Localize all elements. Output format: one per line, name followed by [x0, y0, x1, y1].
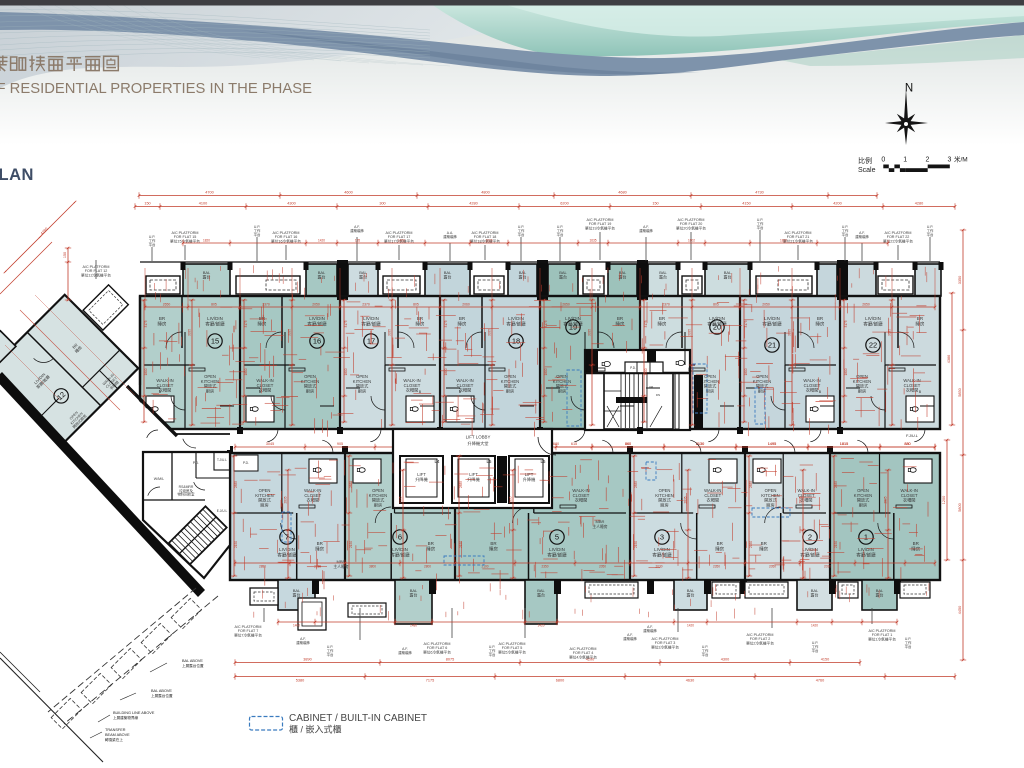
svg-text:BR: BR [490, 541, 497, 546]
svg-text:1800: 1800 [744, 368, 748, 375]
svg-text:客廳/飯廳: 客廳/飯廳 [863, 320, 883, 327]
svg-text:BR: BR [913, 541, 920, 546]
svg-text:860: 860 [625, 442, 631, 446]
svg-text:建築裝飾: 建築裝飾 [350, 228, 364, 233]
svg-text:2130: 2130 [696, 442, 704, 446]
svg-text:1420: 1420 [318, 239, 325, 243]
svg-text:6: 6 [398, 533, 402, 542]
svg-text:2350: 2350 [713, 565, 720, 569]
svg-text:1800: 1800 [144, 368, 148, 375]
svg-text:廚房: 廚房 [766, 501, 774, 508]
svg-text:LIV/DIN: LIV/DIN [764, 316, 780, 321]
svg-text:露台: 露台 [619, 274, 627, 280]
svg-text:4800: 4800 [481, 191, 489, 195]
svg-text:805: 805 [713, 302, 719, 306]
svg-text:LIV/DIN: LIV/DIN [858, 547, 874, 552]
svg-text:P.D.: P.D. [243, 461, 249, 465]
svg-text:升降機: 升降機 [523, 476, 536, 483]
svg-text:4730: 4730 [755, 191, 763, 195]
svg-text:平台: 平台 [842, 232, 849, 237]
svg-text:物料回收室: 物料回收室 [178, 492, 196, 497]
svg-text:單位6冷氣機平台: 單位6冷氣機平台 [423, 649, 451, 654]
svg-text:3335: 3335 [187, 329, 191, 336]
svg-text:1200: 1200 [942, 496, 946, 504]
svg-text:LIV/DIN: LIV/DIN [207, 316, 223, 321]
svg-text:平台: 平台 [557, 232, 564, 237]
svg-text:BAL ABOVE: BAL ABOVE [151, 689, 172, 693]
svg-text:21: 21 [768, 341, 776, 350]
svg-text:3175: 3175 [244, 320, 248, 327]
svg-text:睡房: 睡房 [416, 320, 425, 327]
svg-text:廚房: 廚房 [206, 387, 214, 394]
svg-text:2050: 2050 [762, 302, 770, 306]
svg-text:2835: 2835 [234, 481, 238, 488]
svg-text:睡房: 睡房 [916, 320, 925, 327]
svg-text:3175: 3175 [444, 320, 448, 327]
svg-text:1800: 1800 [344, 368, 348, 375]
svg-text:3175: 3175 [844, 320, 848, 327]
svg-text:4200: 4200 [833, 202, 841, 206]
svg-text:廚房: 廚房 [306, 387, 314, 394]
svg-text:LIV/DIN: LIV/DIN [549, 547, 565, 552]
svg-text:3: 3 [948, 157, 952, 164]
svg-text:2: 2 [926, 157, 930, 164]
svg-text:單位2冷氣機平台: 單位2冷氣機平台 [746, 640, 774, 645]
svg-text:2150: 2150 [834, 541, 838, 548]
svg-text:米/M: 米/M [954, 155, 968, 164]
svg-text:L4: L4 [435, 459, 440, 464]
svg-text:1602: 1602 [688, 239, 695, 243]
svg-text:2060: 2060 [462, 302, 470, 306]
svg-text:LIV/DIN: LIV/DIN [309, 316, 325, 321]
svg-text:客廳/飯廳: 客廳/飯廳 [361, 320, 381, 327]
svg-text:平台: 平台 [149, 242, 156, 247]
svg-text:露台: 露台 [293, 592, 301, 598]
svg-text:LIV/DIN: LIV/DIN [865, 316, 881, 321]
svg-text:衣帽間: 衣帽間 [903, 497, 916, 504]
svg-text:N: N [905, 83, 913, 95]
svg-text:1800: 1800 [544, 368, 548, 375]
svg-text:露台: 露台 [724, 274, 732, 280]
svg-text:升降機: 升降機 [415, 476, 428, 483]
svg-text:2030: 2030 [824, 565, 831, 569]
svg-text:PLAN: PLAN [0, 166, 34, 184]
svg-text:平台: 平台 [757, 225, 764, 230]
svg-text:1800: 1800 [844, 368, 848, 375]
svg-text:BR: BR [417, 316, 424, 321]
svg-text:露台: 露台 [410, 592, 418, 598]
svg-text:7: 7 [285, 533, 289, 542]
svg-text:2150: 2150 [459, 541, 463, 548]
svg-text:2: 2 [808, 533, 812, 542]
svg-text:睡房: 睡房 [458, 320, 467, 327]
svg-text:LIFT LOBBY: LIFT LOBBY [466, 435, 491, 440]
svg-text:2150: 2150 [234, 541, 238, 548]
svg-text:3045: 3045 [266, 442, 274, 446]
svg-text:2880: 2880 [259, 565, 266, 569]
svg-text:2835: 2835 [349, 481, 353, 488]
svg-text:建築裝飾: 建築裝飾 [623, 636, 637, 641]
svg-text:衣帽間: 衣帽間 [707, 497, 720, 504]
svg-text:2835: 2835 [634, 481, 638, 488]
svg-text:BR: BR [428, 541, 435, 546]
svg-text:BAL ABOVE: BAL ABOVE [182, 659, 203, 663]
svg-text:單位20冷氣機平台: 單位20冷氣機平台 [676, 225, 706, 230]
svg-text:廚房: 廚房 [260, 501, 268, 508]
svg-text:5850: 5850 [958, 388, 962, 396]
svg-text:5380: 5380 [296, 679, 304, 683]
svg-text:1: 1 [864, 533, 868, 542]
svg-text:建築裝飾: 建築裝飾 [443, 234, 457, 239]
svg-text:2370: 2370 [362, 302, 370, 306]
svg-text:BEAM ABOVE: BEAM ABOVE [105, 733, 130, 737]
svg-text:805: 805 [211, 302, 217, 306]
svg-text:客廳/飯廳: 客廳/飯廳 [506, 320, 526, 327]
svg-text:建築裝飾: 建築裝飾 [855, 234, 869, 239]
svg-text:3335: 3335 [687, 329, 691, 336]
svg-text:8075: 8075 [446, 658, 454, 662]
svg-text:比例: 比例 [858, 156, 872, 165]
svg-text:BR: BR [761, 541, 768, 546]
svg-text:轉換梁在上: 轉換梁在上 [105, 737, 123, 742]
svg-text:上層建築物界線: 上層建築物界線 [113, 715, 139, 720]
svg-text:OF RESIDENTIAL PROPERTIES IN T: OF RESIDENTIAL PROPERTIES IN THE PHASE [0, 81, 312, 97]
svg-text:6800: 6800 [556, 679, 564, 683]
svg-text:BR: BR [159, 316, 166, 321]
svg-text:1820: 1820 [780, 239, 787, 243]
svg-text:3350: 3350 [958, 276, 962, 284]
svg-text:0: 0 [881, 157, 885, 164]
svg-text:4450: 4450 [958, 606, 962, 614]
svg-text:150: 150 [652, 202, 658, 206]
svg-text:4630: 4630 [686, 679, 694, 683]
svg-text:建築裝飾: 建築裝飾 [643, 628, 657, 633]
svg-text:2650: 2650 [862, 302, 870, 306]
svg-text:2050: 2050 [599, 565, 606, 569]
svg-text:平台: 平台 [327, 652, 334, 657]
svg-text:2800: 2800 [424, 565, 431, 569]
svg-text:1420: 1420 [537, 623, 544, 627]
svg-text:5: 5 [555, 533, 559, 542]
svg-text:單位7冷氣機平台: 單位7冷氣機平台 [234, 632, 262, 637]
svg-text:300: 300 [379, 202, 385, 206]
svg-text:BR: BR [459, 316, 466, 321]
svg-text:單位4冷氣機平台: 單位4冷氣機平台 [569, 654, 597, 659]
svg-text:睡房: 睡房 [158, 320, 167, 327]
svg-text:主人睡房: 主人睡房 [333, 564, 348, 569]
svg-text:4280: 4280 [915, 202, 923, 206]
svg-text:4700: 4700 [205, 191, 213, 195]
svg-text:睡房: 睡房 [715, 545, 724, 552]
svg-text:905: 905 [337, 442, 343, 446]
svg-text:1: 1 [903, 157, 907, 164]
svg-text:客廳/飯廳: 客廳/飯廳 [277, 551, 297, 558]
svg-text:露台: 露台 [559, 274, 567, 280]
svg-text:2835: 2835 [398, 496, 402, 503]
svg-text:露台: 露台 [687, 592, 695, 598]
svg-text:3175: 3175 [544, 320, 548, 327]
svg-text:主人睡房: 主人睡房 [592, 524, 607, 529]
svg-text:1420: 1420 [687, 623, 694, 627]
svg-text:BR: BR [259, 316, 266, 321]
svg-text:LIV/DIN: LIV/DIN [392, 547, 408, 552]
svg-text:2150: 2150 [634, 541, 638, 548]
svg-text:15: 15 [211, 337, 219, 346]
svg-text:805: 805 [413, 302, 419, 306]
svg-text:4100: 4100 [199, 202, 207, 206]
svg-text:135: 135 [355, 239, 361, 243]
svg-text:2835: 2835 [283, 496, 287, 503]
svg-text:露台: 露台 [519, 274, 527, 280]
svg-text:2835: 2835 [508, 496, 512, 503]
svg-text:BR: BR [917, 316, 924, 321]
svg-text:3: 3 [660, 533, 664, 542]
svg-text:4300: 4300 [287, 202, 295, 206]
svg-text:單位19冷氣機平台: 單位19冷氣機平台 [585, 225, 615, 230]
svg-text:7175: 7175 [426, 679, 434, 683]
svg-text:4680: 4680 [618, 191, 626, 195]
svg-text:BR: BR [617, 316, 624, 321]
svg-text:單位1冷氣機平台: 單位1冷氣機平台 [868, 636, 896, 641]
svg-text:22: 22 [869, 341, 877, 350]
svg-text:DN: DN [656, 393, 660, 397]
svg-text:1620: 1620 [485, 239, 492, 243]
svg-text:5800: 5800 [958, 503, 962, 511]
svg-text:P.D.: P.D. [630, 366, 636, 370]
svg-text:LIV/DIN: LIV/DIN [279, 547, 295, 552]
svg-text:4760: 4760 [816, 679, 824, 683]
svg-text:1635: 1635 [589, 239, 596, 243]
svg-text:2650: 2650 [163, 302, 171, 306]
svg-text:平台: 平台 [927, 232, 934, 237]
svg-text:BR: BR [717, 541, 724, 546]
svg-text:3335: 3335 [787, 329, 791, 336]
svg-text:1400: 1400 [293, 623, 300, 627]
svg-text:2650: 2650 [562, 302, 570, 306]
svg-text:睡房: 睡房 [658, 320, 667, 327]
svg-text:1480: 1480 [410, 623, 417, 627]
svg-text:露台: 露台 [876, 592, 884, 598]
svg-text:平台: 平台 [518, 232, 525, 237]
svg-text:客廳/飯廳: 客廳/飯廳 [205, 320, 225, 327]
svg-text:2150: 2150 [349, 541, 353, 548]
svg-text:L5: L5 [487, 459, 492, 464]
svg-text:4280: 4280 [469, 202, 477, 206]
svg-text:20: 20 [713, 323, 721, 332]
svg-text:150: 150 [63, 252, 67, 258]
svg-text:3335: 3335 [587, 329, 591, 336]
svg-text:1495: 1495 [768, 442, 776, 446]
svg-text:客廳/飯廳: 客廳/飯廳 [762, 320, 782, 327]
svg-text:客廳/飯廳: 客廳/飯廳 [390, 551, 410, 558]
svg-text:廚房: 廚房 [506, 387, 514, 394]
svg-text:BR: BR [317, 541, 324, 546]
svg-text:客廳/飯廳: 客廳/飯廳 [307, 320, 327, 327]
svg-text:T.J/U.L: T.J/U.L [217, 458, 227, 462]
svg-text:BR: BR [659, 316, 666, 321]
svg-text:TRANSFER: TRANSFER [105, 728, 126, 732]
svg-text:4150: 4150 [742, 202, 750, 206]
svg-text:1800: 1800 [644, 368, 648, 375]
svg-text:18: 18 [512, 337, 520, 346]
svg-text:建築裝飾: 建築裝飾 [398, 650, 412, 655]
svg-text:露台: 露台 [359, 274, 367, 280]
svg-text:露台: 露台 [444, 274, 452, 280]
svg-text:W/M/L: W/M/L [154, 477, 164, 481]
svg-text:建築裝飾: 建築裝飾 [296, 640, 310, 645]
svg-text:2370: 2370 [662, 302, 670, 306]
svg-text:廚房: 廚房 [859, 501, 867, 508]
svg-text:2835: 2835 [834, 481, 838, 488]
svg-text:睡房: 睡房 [489, 545, 498, 552]
svg-text:1820: 1820 [203, 239, 210, 243]
svg-text:4300: 4300 [721, 658, 729, 662]
svg-text:單位5冷氣機平台: 單位5冷氣機平台 [498, 649, 526, 654]
svg-text:150: 150 [144, 202, 150, 206]
svg-text:L6: L6 [541, 459, 546, 464]
svg-text:露台: 露台 [659, 274, 667, 280]
svg-text:衣帽間: 衣帽間 [575, 497, 588, 504]
svg-text:2835: 2835 [459, 481, 463, 488]
svg-text:平台: 平台 [702, 652, 709, 657]
svg-text:BR: BR [817, 316, 824, 321]
svg-text:1800: 1800 [444, 368, 448, 375]
svg-text:2350: 2350 [541, 565, 548, 569]
svg-text:1815: 1815 [840, 442, 848, 446]
svg-text:客廳/飯廳: 客廳/飯廳 [547, 551, 567, 558]
svg-text:櫃 / 嵌入式櫃: 櫃 / 嵌入式櫃 [289, 724, 342, 735]
svg-text:F.J/U.L: F.J/U.L [906, 434, 918, 438]
svg-text:P.D.: P.D. [193, 461, 200, 465]
svg-text:廚房: 廚房 [660, 501, 668, 508]
svg-text:MBR: MBR [596, 519, 605, 524]
svg-text:平台: 平台 [812, 648, 819, 653]
svg-text:客廳/飯廳: 客廳/飯廳 [856, 551, 876, 558]
svg-text:升降機大堂: 升降機大堂 [468, 440, 489, 447]
svg-text:上層露台位置: 上層露台位置 [151, 693, 173, 698]
svg-text:Scale: Scale [858, 167, 876, 174]
svg-text:1420: 1420 [811, 623, 818, 627]
svg-text:衣帽間: 衣帽間 [906, 387, 919, 394]
svg-text:CABINET / BUILT-IN CABINET: CABINET / BUILT-IN CABINET [289, 713, 427, 724]
svg-text:建築裝飾: 建築裝飾 [639, 228, 653, 233]
svg-text:睡房: 睡房 [816, 320, 825, 327]
svg-text:睡房: 睡房 [616, 320, 625, 327]
svg-text:露台: 露台 [537, 592, 545, 598]
svg-text:6200: 6200 [560, 202, 568, 206]
svg-text:衣帽間: 衣帽間 [406, 387, 419, 394]
svg-text:E.J/U.L: E.J/U.L [217, 509, 228, 513]
svg-text:2050: 2050 [312, 302, 320, 306]
svg-text:880: 880 [904, 442, 910, 446]
svg-text:3335: 3335 [487, 329, 491, 336]
svg-text:3890: 3890 [303, 658, 311, 662]
svg-text:睡房: 睡房 [258, 320, 267, 327]
svg-text:3335: 3335 [387, 329, 391, 336]
svg-text:2835: 2835 [749, 481, 753, 488]
svg-text:1420: 1420 [398, 239, 405, 243]
svg-text:2150: 2150 [749, 541, 753, 548]
svg-text:睡房: 睡房 [426, 545, 435, 552]
svg-text:3175: 3175 [144, 320, 148, 327]
svg-text:LIV/DIN: LIV/DIN [363, 316, 379, 321]
svg-text:平台: 平台 [254, 232, 261, 237]
svg-text:615: 615 [571, 442, 577, 446]
svg-text:4600: 4600 [344, 191, 352, 195]
svg-text:衣帽間: 衣帽間 [806, 387, 819, 394]
svg-text:上層露台位置: 上層露台位置 [182, 663, 204, 668]
svg-text:平台: 平台 [489, 652, 496, 657]
svg-text:睡房: 睡房 [759, 545, 768, 552]
svg-text:4150: 4150 [821, 658, 829, 662]
svg-text:露台: 露台 [811, 592, 819, 598]
svg-text:3800: 3800 [369, 565, 376, 569]
svg-text:4386: 4386 [947, 355, 951, 363]
svg-text:平台: 平台 [905, 644, 912, 649]
svg-text:BUILDING LINE ABOVE: BUILDING LINE ABOVE [113, 711, 155, 715]
svg-text:單位3冷氣機平台: 單位3冷氣機平台 [651, 644, 679, 649]
svg-text:廚房: 廚房 [374, 501, 382, 508]
